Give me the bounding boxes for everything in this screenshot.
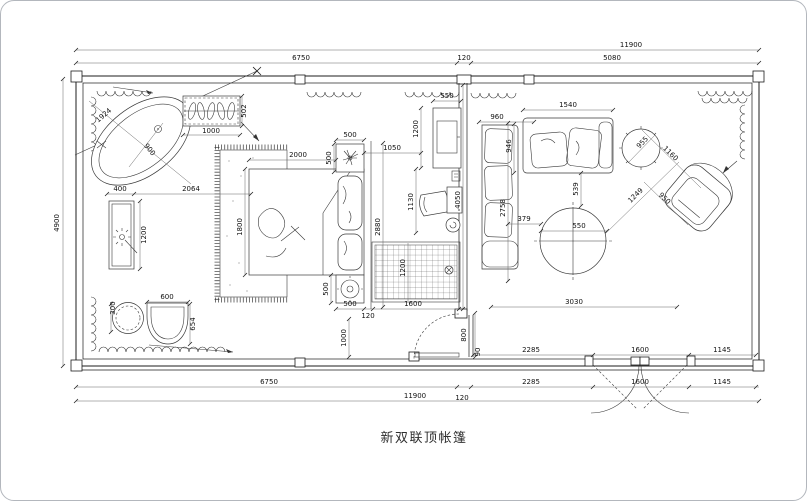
- dim-shower-depth: 1200: [399, 259, 407, 277]
- dim-top-overall: 11900: [620, 41, 642, 49]
- round-table: [534, 202, 612, 280]
- dim-bottom-out-a: 2285: [522, 378, 540, 386]
- wardrobe-rack: [183, 96, 240, 126]
- dim-nightstand-bot-w: 500: [343, 300, 356, 308]
- dim-bottom-out-c: 1145: [713, 378, 731, 386]
- dim-chair-len: 1160: [661, 144, 679, 162]
- dim-shower-width: 1600: [404, 300, 422, 308]
- dim-bottom-in-c: 1145: [713, 346, 731, 354]
- dim-tv-height: 1200: [412, 120, 420, 138]
- dim-top-mid: 120: [457, 54, 470, 62]
- bedroom-zone: [215, 108, 462, 309]
- drawing-title: 新双联顶帐篷: [380, 430, 467, 446]
- dim-sofa-depth: 946: [505, 139, 513, 153]
- dim-tv-offset: 1050: [383, 144, 401, 152]
- nightstand-top: [336, 144, 364, 172]
- dim-wardrobe-depth: 502: [240, 104, 248, 117]
- dim-living-depth: 2758: [499, 199, 507, 217]
- nightstand-bottom: [336, 275, 364, 303]
- dim-wardrobe-width: 1000: [202, 127, 220, 135]
- dim-living-door-gap: 90: [474, 348, 482, 357]
- dim-table-offset: 539: [572, 182, 580, 195]
- dim-sofa-top: 1540: [559, 101, 577, 109]
- dim-toilet-width: 600: [160, 293, 173, 301]
- dim-bottom-overall: 11900: [404, 392, 426, 400]
- dim-bottom-gap: 120: [455, 394, 468, 402]
- dim-nightstand-bot-d: 500: [322, 282, 330, 295]
- dim-bed-width: 1800: [236, 218, 244, 236]
- screenshot-frame: 11900 6750 120 5080 4900 6750 11900 120 …: [0, 0, 807, 501]
- living-zone: [482, 118, 742, 280]
- floor-plan-drawing: 11900 6750 120 5080 4900 6750 11900 120 …: [1, 1, 807, 501]
- dim-chair-diag: 1249: [626, 186, 644, 204]
- bedroom-door: [409, 314, 459, 361]
- dim-left-height: 4900: [53, 214, 61, 232]
- dim-tv-width: 550: [440, 92, 453, 100]
- dim-bed-wall: 2880: [374, 218, 382, 236]
- dim-table-dia: 550: [572, 222, 585, 230]
- dim-bottom-out-b: 1600: [631, 378, 649, 386]
- dim-tub-diag: 1924: [94, 106, 113, 124]
- dim-shower-gap: 120: [361, 312, 374, 320]
- dim-table-gap: 379: [517, 215, 530, 223]
- dim-living-door: 800: [460, 328, 468, 341]
- dim-stool: 300: [109, 301, 117, 314]
- dim-nightstand-top-w: 500: [343, 131, 356, 139]
- dim-bottom-left: 6750: [260, 378, 278, 386]
- dim-partition: 4050: [454, 191, 462, 209]
- dim-bottom-in-a: 2285: [522, 346, 540, 354]
- dim-nightstand-top-d: 500: [325, 151, 333, 164]
- dim-top-right: 5080: [603, 54, 621, 62]
- tv-cabinet: [433, 108, 461, 168]
- pillow: [338, 234, 362, 270]
- toilet: [147, 303, 188, 344]
- doors: [409, 314, 695, 413]
- top-sofa: [523, 118, 613, 173]
- dim-toilet-depth: 654: [189, 317, 197, 331]
- dim-bottom-in-b: 1600: [631, 346, 649, 354]
- x-marker: [253, 67, 261, 75]
- vanity-counter: [109, 201, 137, 269]
- dim-vanity-offset: 400: [113, 185, 126, 193]
- floor-lamp: [446, 218, 460, 232]
- stool: [113, 303, 144, 334]
- dim-living-width: 3030: [565, 298, 583, 306]
- dim-vanity-length: 1200: [140, 226, 148, 244]
- armchair: [660, 153, 742, 236]
- dim-desk: 1130: [407, 193, 415, 211]
- dim-top-left: 6750: [292, 54, 310, 62]
- dim-door-width: 1000: [340, 329, 348, 347]
- dim-sofa-side: 960: [490, 113, 503, 121]
- double-bed: [249, 169, 364, 275]
- dim-bed-length: 2000: [289, 151, 307, 159]
- shower-mat-grid: [372, 242, 460, 302]
- dim-vanity-to-rug: 2064: [182, 185, 200, 193]
